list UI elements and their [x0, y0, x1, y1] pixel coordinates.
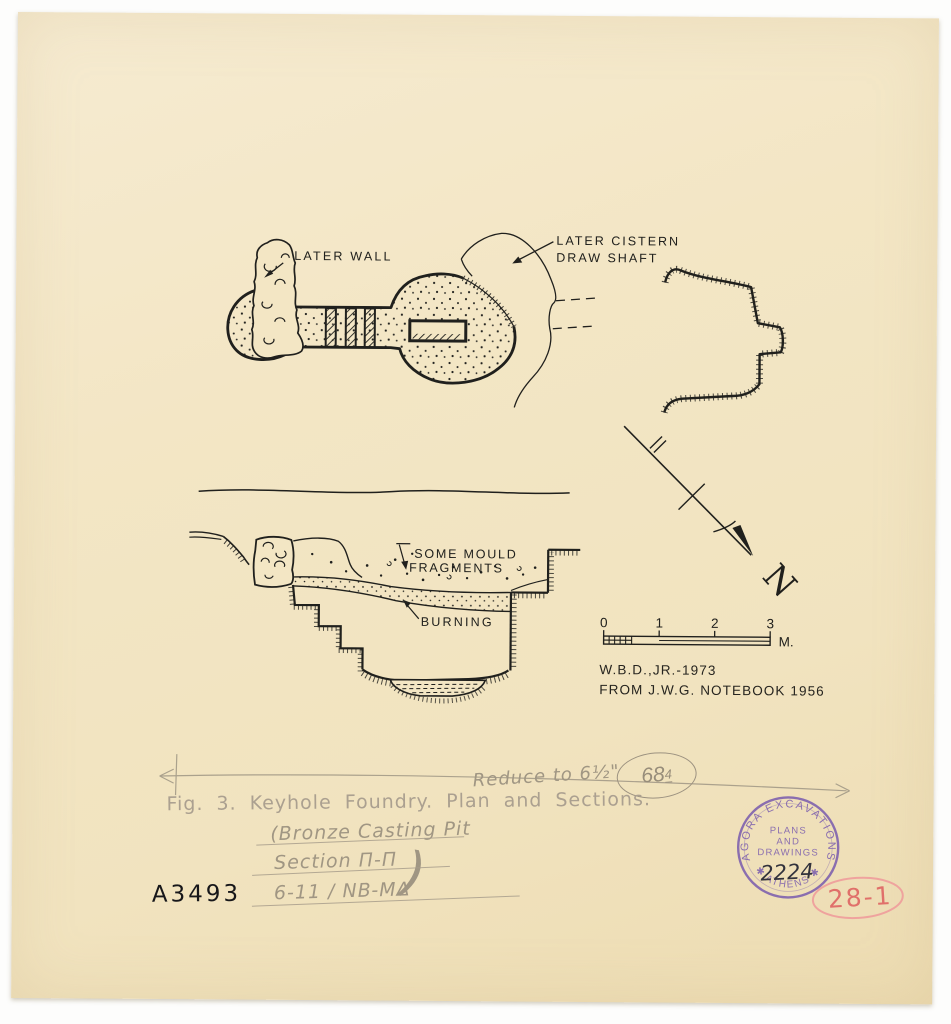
inventory-number: A3493: [152, 881, 242, 908]
cistern-arrowhead: [512, 256, 522, 263]
plan-drawing: LATER WALL LATER CISTERN DRAW SHAFT: [222, 229, 693, 427]
scanned-drawing-page: LATER WALL LATER CISTERN DRAW SHAFT: [0, 0, 951, 1024]
plate-number-group: 28-1: [810, 874, 906, 923]
burning-label: BURNING: [421, 615, 494, 630]
cistern-label-line2: DRAW SHAFT: [556, 251, 658, 266]
mould-arrowhead: [401, 561, 408, 570]
left-surface-lower: [189, 537, 221, 539]
measure-end-tick: [176, 754, 177, 795]
circled-number-value: 68: [640, 763, 665, 789]
pit-right-wall: [510, 592, 511, 670]
bottom-lens: [390, 680, 485, 697]
wall-block-section: [253, 537, 293, 587]
scale-tick-1: 1: [655, 615, 663, 630]
scale-tick-2: 2: [711, 616, 719, 631]
north-arrow: N: [601, 424, 802, 610]
pit-steps-hatching: [290, 587, 361, 671]
north-arrow-barb: [713, 521, 735, 532]
shaft-profile-drawing: [652, 252, 798, 423]
scale-tick-0: 0: [600, 615, 608, 630]
fill-surface-line: [511, 579, 547, 590]
neck-band-2: [346, 308, 356, 347]
paper-sheet: LATER WALL LATER CISTERN DRAW SHAFT: [11, 12, 939, 1004]
crossed-out-line-1: (Bronze Casting Pit: [270, 818, 471, 846]
left-slope-hatching: [225, 541, 244, 562]
shaft-profile-hatching: [664, 269, 783, 413]
scale-unit: M.: [779, 634, 794, 649]
scale-bar: 0 1 2 3 M.: [595, 614, 815, 664]
closing-paren: ): [398, 839, 430, 905]
credits-block: W.B.D.,JR.-1973 FROM J.W.G. NOTEBOOK 195…: [599, 660, 825, 702]
scale-subdivisions: [604, 636, 632, 644]
credit-line-2: FROM J.W.G. NOTEBOOK 1956: [599, 680, 825, 702]
left-surface-upper: [189, 532, 223, 536]
plate-number: 28-1: [827, 881, 893, 914]
cistern-label-line1: LATER CISTERN: [556, 234, 680, 249]
right-wall-hatching: [513, 594, 514, 668]
north-arrow-shaft: [623, 426, 752, 555]
credit-line-1: W.B.D.,JR.-1973: [599, 660, 825, 682]
circled-number-sup: 4: [664, 766, 672, 783]
north-arrowhead: [732, 525, 753, 556]
burning-band-fill: [294, 577, 511, 612]
stamp-center-line1: PLANS: [770, 825, 807, 836]
section-drawing: SOME MOULD FRAGMENTS BURNING: [180, 466, 602, 719]
north-letter: N: [754, 557, 804, 606]
mould-label-line2: FRAGMENTS: [409, 561, 504, 576]
burning-leader: [407, 605, 419, 619]
neck-band-3: [365, 308, 375, 347]
neck-band-1: [326, 308, 336, 347]
cistern-leader: [517, 241, 553, 260]
ground-line: [199, 489, 570, 494]
pit-mouth-line: [293, 538, 362, 577]
cistern-dashed-line-1: [556, 298, 596, 301]
north-arrow-crossbar: [679, 484, 705, 510]
stamp-center-line2: AND: [776, 836, 800, 847]
north-arrow-ticks: [650, 436, 666, 452]
later-wall-label: LATER WALL: [294, 249, 393, 264]
scale-tick-3: 3: [766, 616, 774, 631]
mould-label-line1: SOME MOULD: [414, 547, 518, 562]
runner-channel-hatch: [413, 334, 461, 340]
cistern-outline-join: [461, 259, 472, 276]
stamp-number: 2224: [760, 859, 814, 885]
cistern-dashed-line-2: [553, 326, 595, 329]
scale-bar-midline: [659, 640, 770, 641]
stamp-center-line3: DRAWINGS: [757, 847, 819, 858]
